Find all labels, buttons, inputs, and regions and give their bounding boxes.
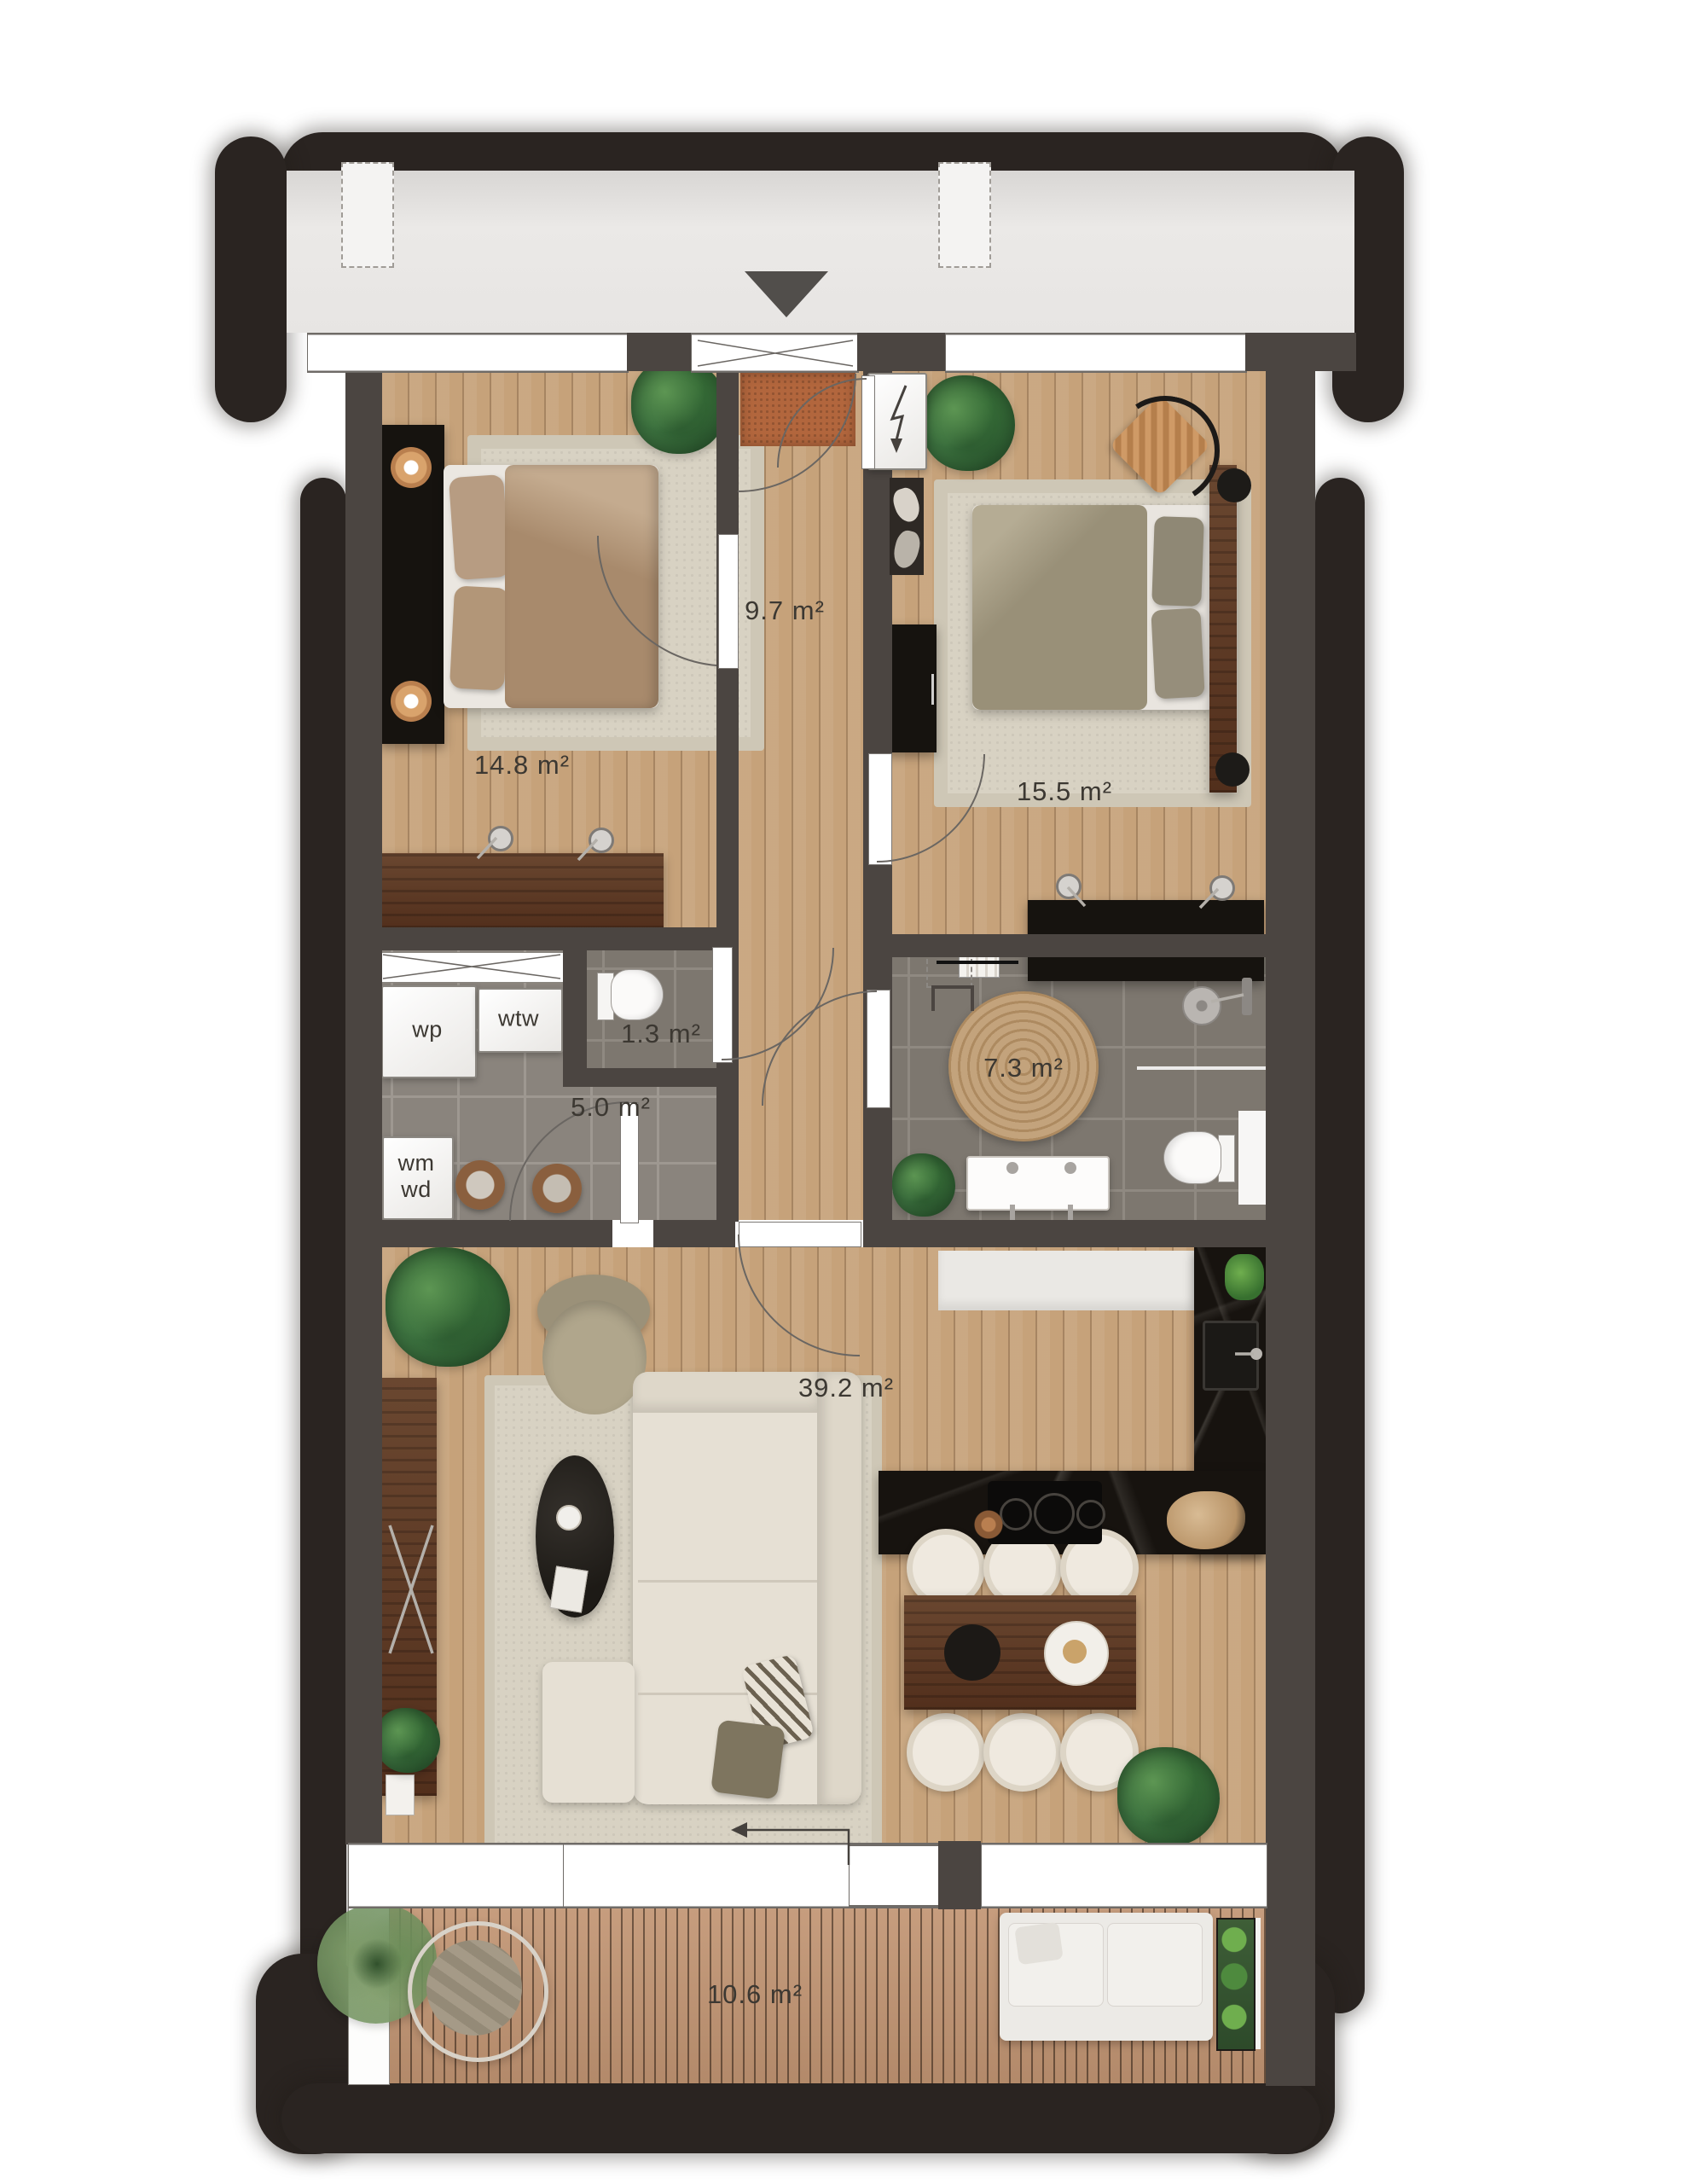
- x-decor-icon: [390, 1525, 432, 1653]
- heat-recovery-label: wtw: [498, 1005, 539, 1031]
- entrance-door-leaf-lines: [698, 340, 853, 366]
- shower-arm: [1211, 995, 1244, 1002]
- toilet-area-label: 1.3 m²: [621, 1019, 701, 1049]
- floor-plan: 9.7 m² 14.8 m² 15.5 m² 1.3 m² 5.0 m² 7.3…: [0, 0, 1705, 2184]
- bedroom-1-area-label: 14.8 m²: [474, 750, 570, 781]
- toilet-door-swing-arc: [722, 948, 833, 1060]
- living-area-label: 39.2 m²: [798, 1373, 894, 1403]
- desk-lamp-arm: [478, 838, 597, 860]
- bathroom-door-swing-arc: [763, 991, 877, 1106]
- bedroom-1-door-swing-arc: [598, 536, 716, 665]
- lightning-icon: [892, 386, 906, 440]
- closet-cross-lines: [383, 955, 560, 979]
- hallway-area-label: 9.7 m²: [745, 595, 825, 626]
- entrance-door-swing-arc: [738, 374, 855, 491]
- desk-lamp-arm: [1068, 887, 1218, 908]
- bathroom-area-label: 7.3 m²: [983, 1053, 1064, 1083]
- lightning-arrowhead: [890, 439, 902, 453]
- sliding-door-arrow: [747, 1830, 849, 1865]
- lineart-overlay: [0, 0, 1705, 2184]
- bedroom-2-area-label: 15.5 m²: [1017, 776, 1112, 807]
- bedroom-2-door-swing-arc: [877, 754, 984, 862]
- utility-area-label: 5.0 m²: [571, 1092, 651, 1123]
- heat-pump-label: wp: [412, 1016, 443, 1043]
- balcony-area-label: 10.6 m²: [707, 1979, 803, 2010]
- sliding-door-arrowhead: [731, 1822, 747, 1838]
- living-door-swing-arc: [739, 1234, 860, 1356]
- washer-dryer-label: wm wd: [398, 1150, 435, 1203]
